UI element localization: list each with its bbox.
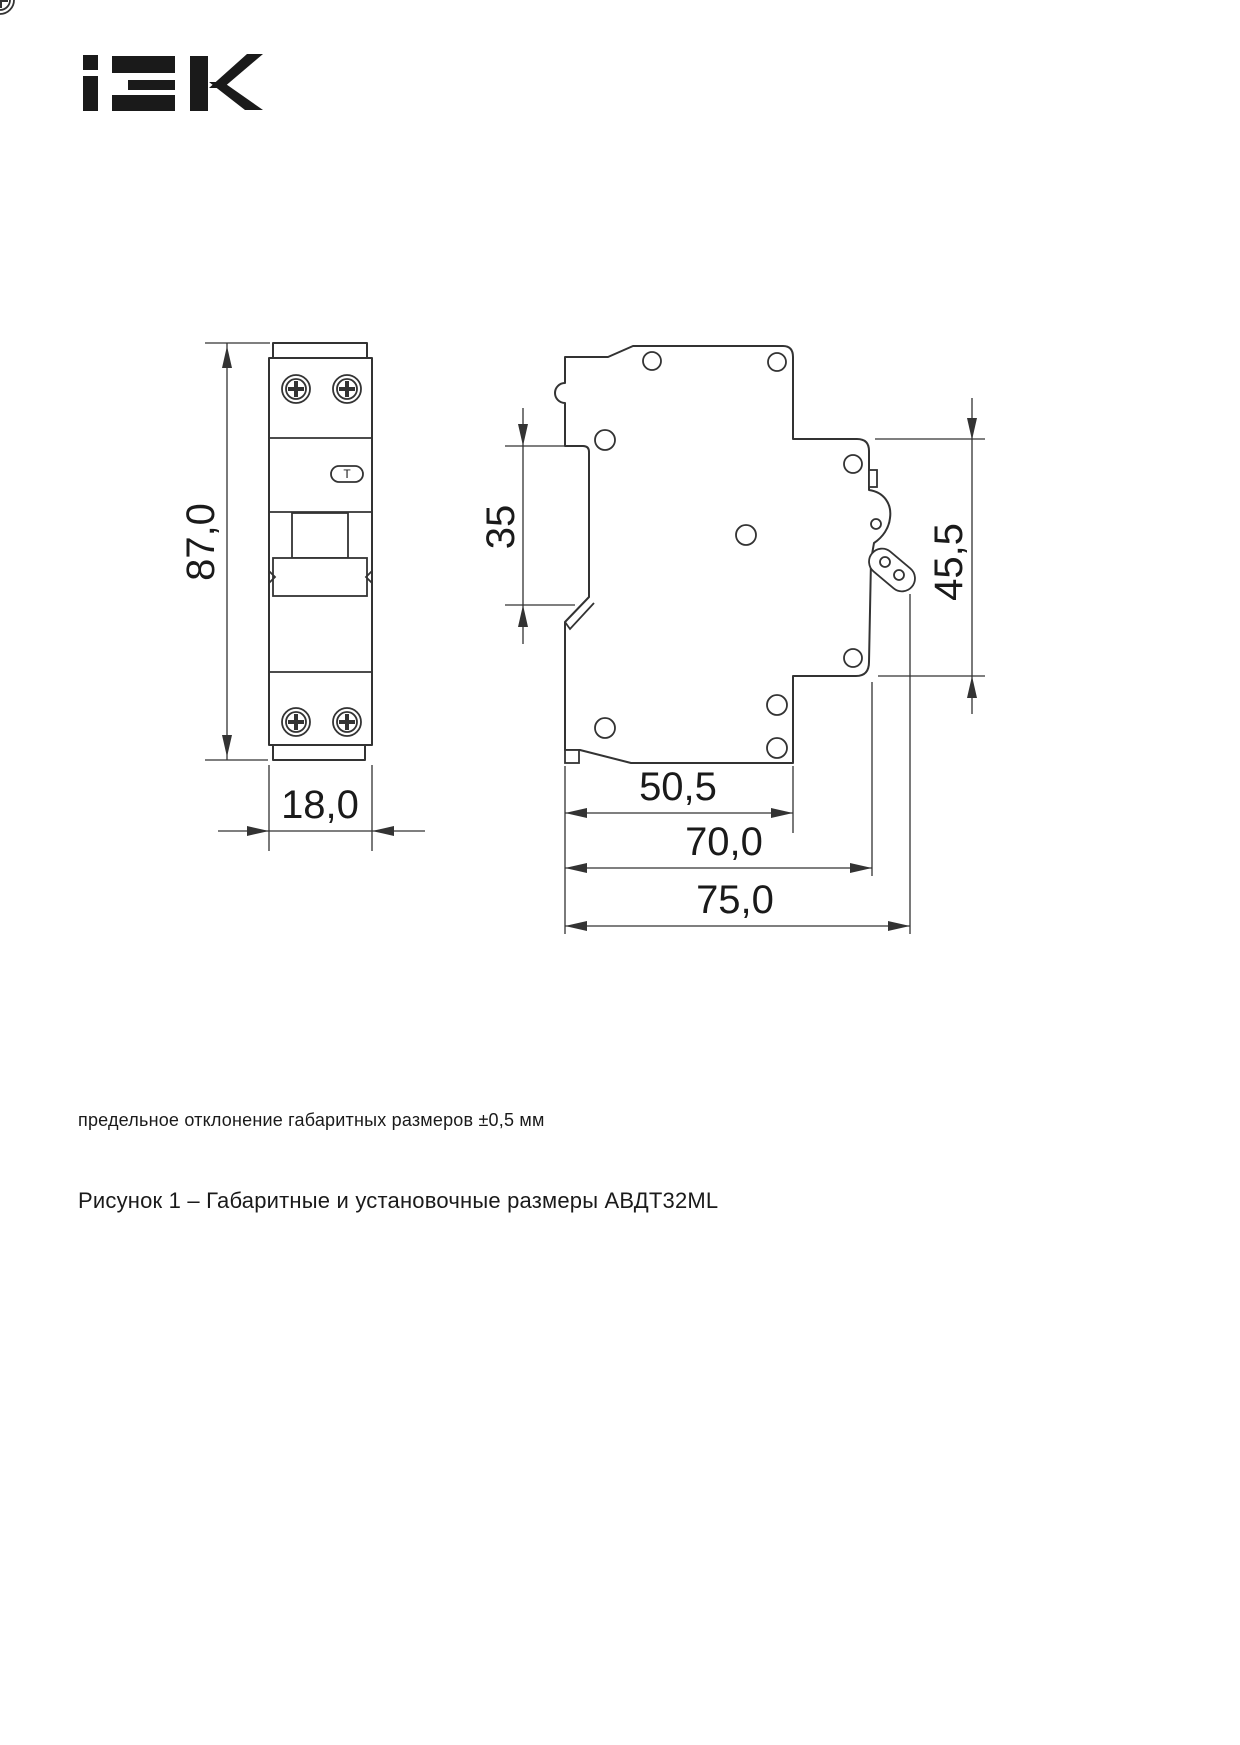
figure-caption: Рисунок 1 – Габаритные и установочные ра… bbox=[78, 1188, 718, 1214]
arrowhead-icon bbox=[967, 676, 977, 698]
terminal-screw-icon bbox=[282, 708, 310, 736]
arrowhead-icon bbox=[771, 808, 793, 818]
dimension-label: 70,0 bbox=[685, 820, 763, 864]
terminal-screw-icon bbox=[333, 375, 361, 403]
arrowhead-icon bbox=[850, 863, 872, 873]
arrowhead-icon bbox=[518, 605, 528, 627]
arrowhead-icon bbox=[222, 346, 232, 368]
tolerance-note: предельное отклонение габаритных размеро… bbox=[78, 1110, 545, 1131]
dimension-label: 45,5 bbox=[927, 523, 971, 601]
dimension-label: 50,5 bbox=[639, 765, 717, 809]
toggle-handle bbox=[273, 558, 367, 596]
dimension-width-18: 18,0 bbox=[218, 765, 425, 851]
dimension-label: 35 bbox=[479, 505, 523, 550]
breaker-top-cap bbox=[273, 343, 367, 358]
dimension-label: 18,0 bbox=[281, 783, 359, 827]
terminal-screw-icon bbox=[333, 708, 361, 736]
document-page: T 87,0 18,0 bbox=[0, 0, 1240, 1745]
dimension-drawing: T 87,0 18,0 bbox=[0, 0, 1240, 1000]
arrowhead-icon bbox=[888, 921, 910, 931]
front-view-drawing: T bbox=[0, 0, 372, 760]
arrowhead-icon bbox=[967, 418, 977, 440]
edge-tab bbox=[869, 470, 877, 487]
arrowhead-icon bbox=[222, 735, 232, 757]
terminal-screw-icon bbox=[0, 0, 14, 14]
arrowhead-icon bbox=[565, 863, 587, 873]
dimension-label: 75,0 bbox=[696, 878, 774, 922]
arrowhead-icon bbox=[565, 921, 587, 931]
breaker-bottom-cap bbox=[273, 745, 365, 760]
terminal-screw-icon bbox=[282, 375, 310, 403]
side-view-drawing bbox=[555, 346, 920, 763]
test-button-label: T bbox=[343, 467, 351, 481]
arrowhead-icon bbox=[518, 424, 528, 446]
breaker-side-outline bbox=[555, 346, 890, 763]
dimension-label: 87,0 bbox=[179, 503, 223, 581]
mounting-foot bbox=[565, 750, 579, 763]
arrowhead-icon bbox=[247, 826, 269, 836]
arrowhead-icon bbox=[372, 826, 394, 836]
dimension-height-87: 87,0 bbox=[179, 343, 270, 760]
arrowhead-icon bbox=[565, 808, 587, 818]
toggle-dolly bbox=[292, 513, 348, 558]
